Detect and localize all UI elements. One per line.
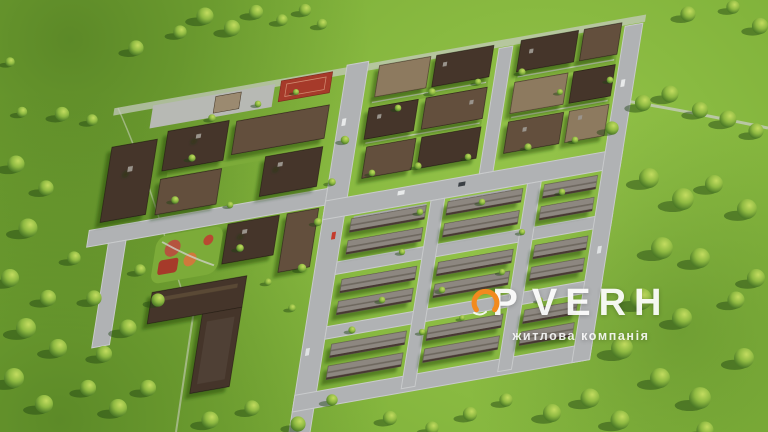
site-plan-illustration xyxy=(0,0,768,432)
aerial-render: P VERH житлова компанія xyxy=(0,0,768,432)
